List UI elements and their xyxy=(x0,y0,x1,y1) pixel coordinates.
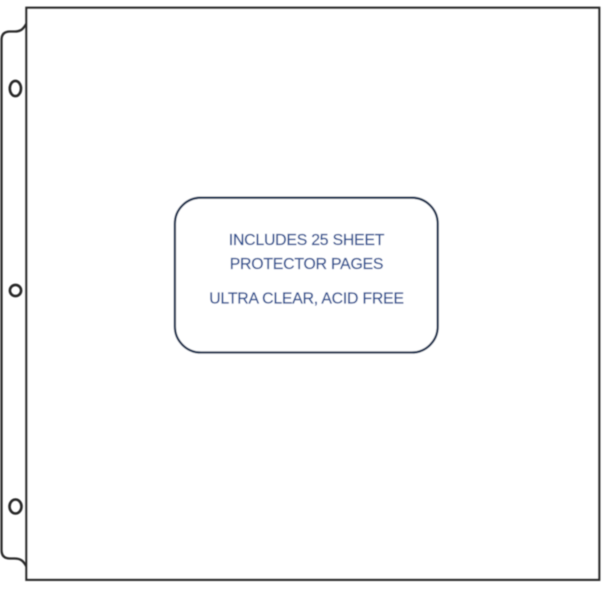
svg-text:PROTECTOR PAGES: PROTECTOR PAGES xyxy=(230,256,384,273)
svg-text:INCLUDES 25 SHEET: INCLUDES 25 SHEET xyxy=(229,232,385,249)
svg-text:ULTRA CLEAR, ACID FREE: ULTRA CLEAR, ACID FREE xyxy=(209,291,404,308)
